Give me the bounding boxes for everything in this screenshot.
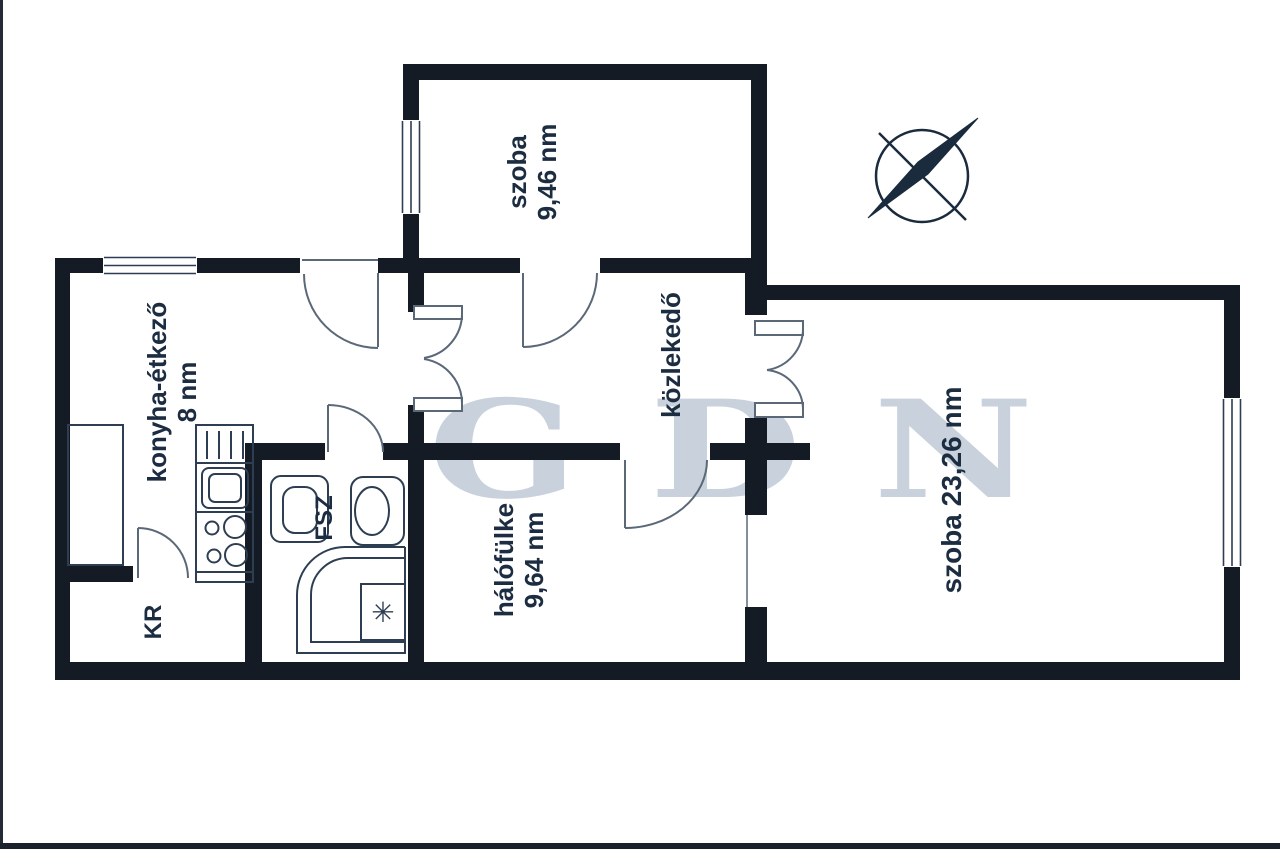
wall <box>751 64 767 273</box>
doors <box>138 260 803 607</box>
kitchen-sink-icon <box>202 468 248 508</box>
wall <box>751 285 1240 300</box>
walls <box>55 64 1240 680</box>
room-name: konyha-étkező <box>143 292 173 492</box>
room-label-kitchen: konyha-étkező 8 nm <box>143 292 203 492</box>
double-door-hallway-room <box>755 321 803 417</box>
wall <box>408 405 424 662</box>
bathtub-icon: ✳ <box>297 547 405 653</box>
window-top-room <box>401 120 421 214</box>
room-label-hallway: közlekedő <box>657 280 687 430</box>
room-area: 9,46 nm <box>533 117 563 227</box>
window-right-room <box>1222 398 1242 567</box>
door-bathroom <box>328 405 383 452</box>
kitchen-counter <box>196 425 253 582</box>
stove-icon <box>206 516 248 566</box>
wall <box>745 607 767 680</box>
wall <box>745 273 767 315</box>
wall <box>600 258 767 273</box>
room-area: 8 nm <box>173 292 203 492</box>
wall <box>195 258 300 273</box>
room-label-szoba-big: szoba 23,26 nm <box>936 380 968 600</box>
kitchen-table <box>68 425 123 565</box>
washbasin-icon <box>351 477 404 545</box>
wall <box>55 662 1240 680</box>
room-label-pantry: KR <box>140 600 168 644</box>
wall <box>745 418 767 515</box>
wall <box>403 64 419 122</box>
door-pantry <box>138 528 188 578</box>
shower-star-icon: ✳ <box>371 596 394 629</box>
north-compass-icon <box>868 118 978 222</box>
room-name: FSZ <box>311 490 339 546</box>
door-top-room <box>523 273 597 347</box>
wall <box>378 258 424 273</box>
wall <box>424 258 520 273</box>
door-alcove <box>625 460 707 528</box>
room-name: hálófülke <box>490 495 520 625</box>
drainer-icon <box>207 431 243 459</box>
room-label-bathroom: FSZ <box>311 490 339 546</box>
room-name: szoba <box>503 117 533 227</box>
room-area: 9,64 nm <box>520 495 550 625</box>
window-kitchen <box>103 256 197 275</box>
floor-plan: GDN <box>0 0 1280 849</box>
room-name: szoba 23,26 nm <box>936 380 968 600</box>
room-name: KR <box>140 600 168 644</box>
room-name: közlekedő <box>657 280 687 430</box>
door-kitchen-entry <box>302 260 378 348</box>
double-door-kitchen-hallway <box>414 306 462 411</box>
room-label-alcove: hálófülke 9,64 nm <box>490 495 550 625</box>
wall <box>403 64 767 80</box>
room-label-szoba-small: szoba 9,46 nm <box>503 117 563 227</box>
